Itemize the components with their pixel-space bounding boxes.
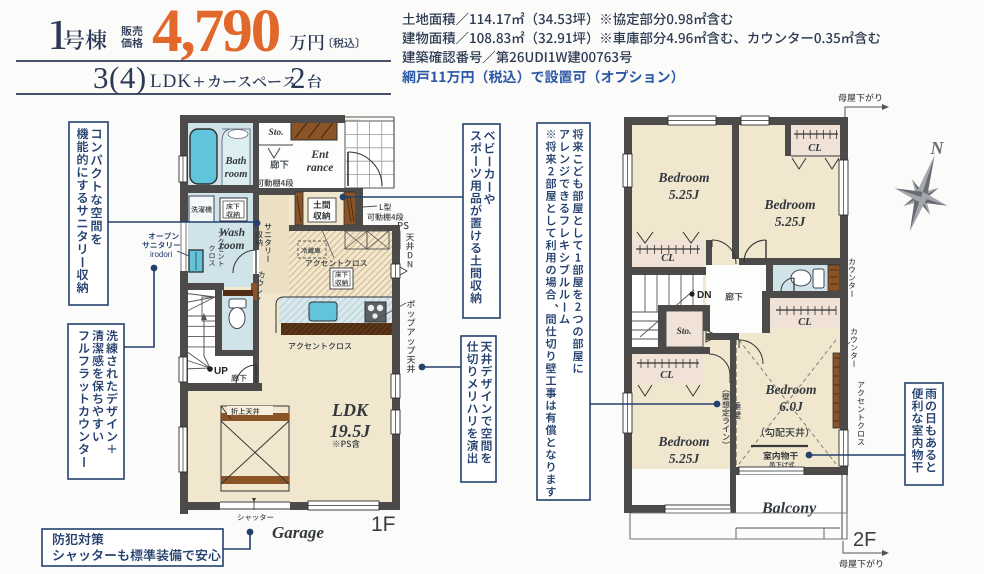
svg-text:CL: CL: [661, 253, 674, 264]
svg-text:N: N: [930, 138, 945, 158]
svg-text:3(4): 3(4): [93, 60, 147, 95]
svg-text:Balcony: Balcony: [761, 500, 817, 517]
svg-text:5.25J: 5.25J: [775, 214, 807, 229]
svg-text:CL: CL: [808, 143, 821, 154]
svg-text:LDK: LDK: [150, 71, 192, 92]
svg-text:Sto.: Sto.: [676, 327, 691, 337]
svg-text:UP: UP: [214, 366, 228, 377]
svg-text:5.25J: 5.25J: [669, 451, 701, 466]
svg-text:rance: rance: [307, 162, 334, 174]
svg-text:5.25J: 5.25J: [669, 187, 701, 202]
svg-text:DN: DN: [697, 290, 711, 301]
svg-text:Bedroom: Bedroom: [763, 197, 815, 212]
svg-text:room: room: [225, 169, 248, 180]
svg-text:Bath: Bath: [224, 156, 246, 167]
svg-text:irodori: irodori: [150, 250, 172, 259]
svg-text:Garage: Garage: [272, 523, 324, 542]
svg-text:LDK: LDK: [331, 400, 370, 420]
svg-text:Sto.: Sto.: [268, 128, 283, 138]
svg-text:Bedroom: Bedroom: [657, 170, 709, 185]
svg-text:19.5J: 19.5J: [330, 421, 372, 441]
svg-text:Bedroom: Bedroom: [764, 382, 816, 397]
svg-text:CL: CL: [798, 317, 811, 328]
svg-text:room: room: [220, 240, 245, 252]
svg-text:6.0J: 6.0J: [779, 399, 804, 414]
svg-text:CL: CL: [660, 370, 673, 381]
svg-text:2F: 2F: [853, 529, 876, 551]
svg-text:2: 2: [290, 60, 306, 95]
svg-text:Bedroom: Bedroom: [657, 434, 709, 449]
svg-text:4,790: 4,790: [152, 0, 280, 65]
svg-text:Ent: Ent: [310, 149, 329, 161]
svg-text:1F: 1F: [371, 513, 396, 536]
